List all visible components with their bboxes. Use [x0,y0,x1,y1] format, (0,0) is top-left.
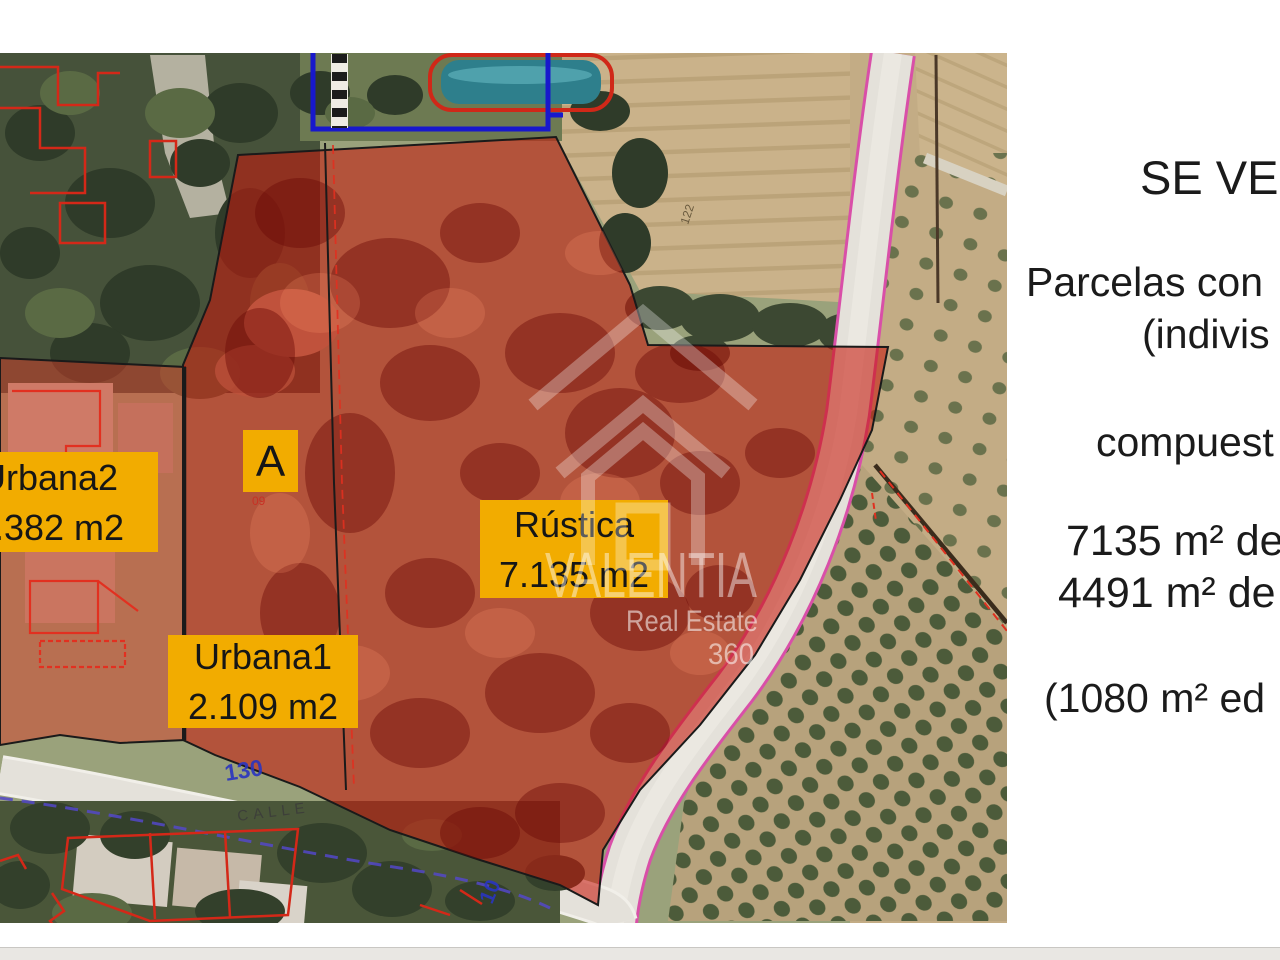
aerial-map-image: 09 130 CALLE 10 122 Urbana2 2.382 m2 A R… [0,53,1007,923]
parcel-name: A [256,434,285,489]
listing-area-edificable: (1080 m² ed [1044,675,1265,722]
zone-a-code: 09 [252,494,266,508]
parcel-label-rustica: Rústica 7.135 m2 [480,500,668,598]
listing-line-parcelas: Parcelas con [1026,259,1263,306]
listing-page: 09 130 CALLE 10 122 Urbana2 2.382 m2 A R… [0,0,1280,960]
listing-line-indivisibles: (indivis [1142,311,1270,358]
parcel-area: 2.109 m2 [188,684,338,729]
parcel-area: 7.135 m2 [499,552,649,597]
parcel-name: Urbana1 [194,634,332,679]
swimming-pool [430,55,612,110]
parcel-area: 2.382 m2 [0,505,124,550]
parcel-label-urbana2: Urbana2 2.382 m2 [0,452,158,552]
listing-line-compuesta: compuest [1096,419,1274,466]
parcel-name: Rústica [514,502,634,547]
parcel-name: Urbana2 [0,455,118,500]
parcel-label-urbana1: Urbana1 2.109 m2 [168,635,358,728]
listing-area-urbana: 4491 m² de [1058,569,1276,618]
bottom-bar [0,947,1280,960]
parcel-label-zone-a: A [243,430,298,492]
listing-title: SE VEN [1140,150,1280,205]
listing-area-rustica: 7135 m² de [1066,517,1280,566]
